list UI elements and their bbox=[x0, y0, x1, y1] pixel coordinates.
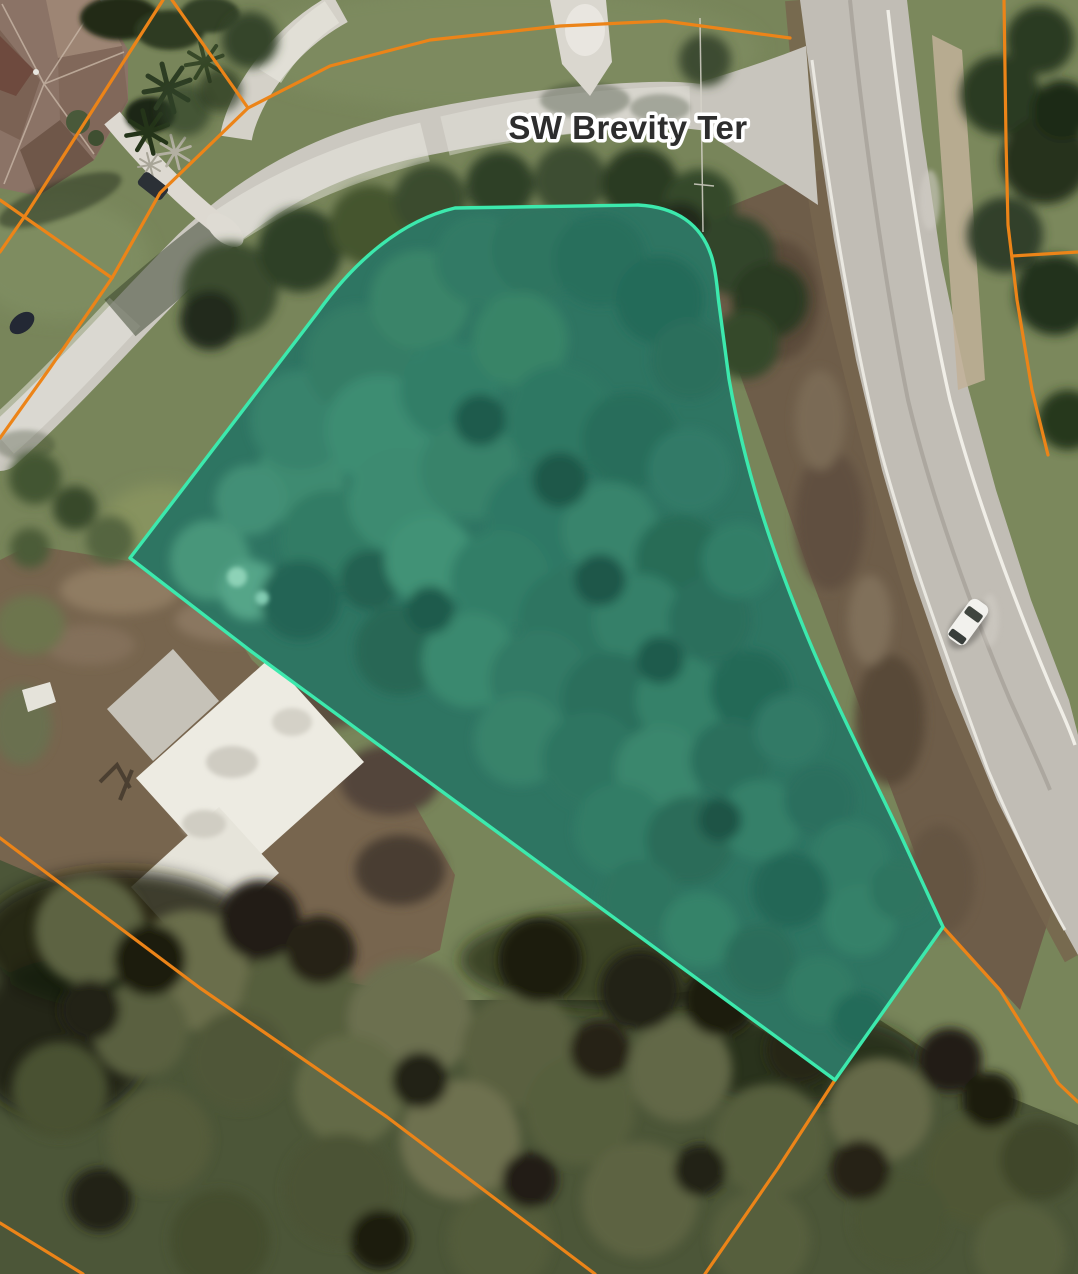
aerial-map[interactable]: SW Brevity Ter bbox=[0, 0, 1078, 1274]
street-label: SW Brevity Ter bbox=[508, 109, 747, 146]
map-viewport[interactable]: SW Brevity Ter bbox=[0, 0, 1078, 1274]
